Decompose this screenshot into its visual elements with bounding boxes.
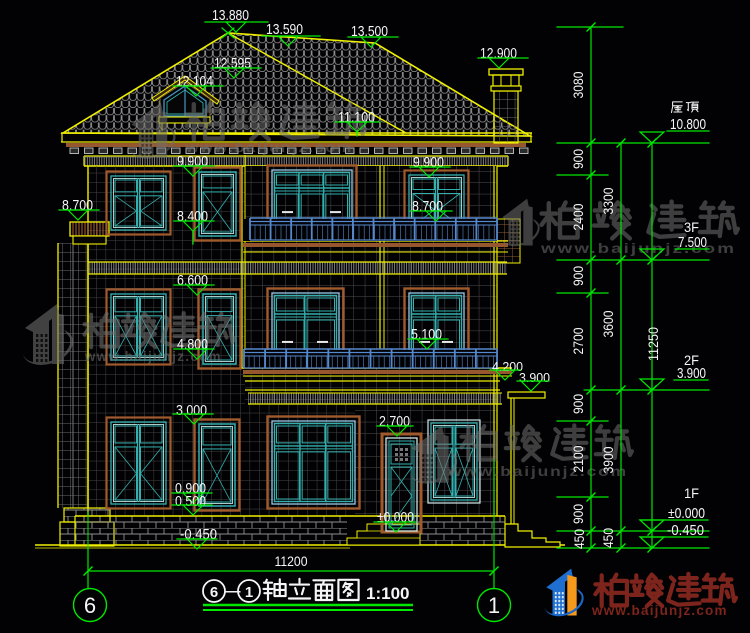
svg-text:www.baijunjz.com: www.baijunjz.com: [185, 139, 353, 155]
svg-text:9.900: 9.900: [413, 155, 444, 171]
svg-text:5.100: 5.100: [411, 327, 442, 343]
svg-text:11200: 11200: [275, 553, 308, 569]
svg-text:±0.000: ±0.000: [377, 510, 414, 526]
svg-text:4.800: 4.800: [177, 337, 208, 353]
svg-text:3600: 3600: [601, 311, 616, 338]
svg-text:12.900: 12.900: [480, 46, 517, 62]
svg-text:2400: 2400: [571, 204, 586, 231]
svg-text:3300: 3300: [601, 188, 616, 215]
svg-text:12.104: 12.104: [176, 74, 213, 90]
svg-text:3F: 3F: [684, 219, 699, 235]
svg-text:11.100: 11.100: [338, 110, 375, 126]
svg-text:6: 6: [210, 584, 218, 601]
svg-text:450: 450: [572, 529, 587, 549]
svg-text:1F: 1F: [684, 485, 699, 501]
svg-text:12.595: 12.595: [214, 56, 251, 72]
svg-text:1: 1: [488, 593, 500, 618]
svg-text:9.900: 9.900: [177, 154, 208, 170]
svg-text:3080: 3080: [571, 72, 586, 99]
svg-text:900: 900: [571, 266, 586, 286]
svg-text:1:100: 1:100: [366, 584, 409, 603]
svg-text:www.baijunjz.com: www.baijunjz.com: [591, 603, 728, 618]
svg-text:-0.450: -0.450: [180, 527, 217, 543]
svg-text:900: 900: [571, 394, 586, 414]
svg-text:450: 450: [601, 528, 616, 548]
svg-text:3900: 3900: [601, 447, 616, 474]
svg-text:6: 6: [84, 593, 96, 618]
svg-text:2700: 2700: [571, 328, 586, 355]
svg-text:900: 900: [571, 504, 586, 524]
svg-text:2100: 2100: [571, 446, 586, 473]
svg-text:8.400: 8.400: [177, 209, 208, 225]
svg-text:1: 1: [245, 584, 253, 601]
svg-text:0.500: 0.500: [175, 494, 206, 510]
svg-text:6.600: 6.600: [177, 273, 208, 289]
svg-text:11250: 11250: [646, 327, 661, 361]
svg-text:8.700: 8.700: [62, 198, 93, 214]
svg-text:3.000: 3.000: [176, 403, 207, 419]
svg-text:900: 900: [571, 149, 586, 169]
